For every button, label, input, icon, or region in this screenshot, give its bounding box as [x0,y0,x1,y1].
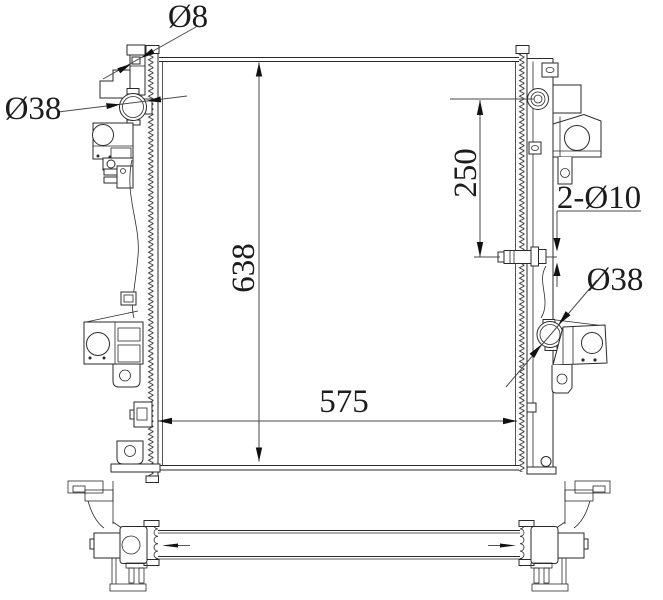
dimension-core-width: 575 [158,384,517,424]
dimension-inlet-dia: Ø38 [5,91,187,127]
right-end-tank [519,481,610,591]
bracket-top-right [553,85,601,157]
dim-label-638: 638 [226,243,262,293]
dim-label-250: 250 [448,148,484,198]
left-end-tank [68,481,159,591]
connector-top-left [104,166,133,188]
break-line [541,266,546,318]
bracket-bottom-left [84,311,143,387]
right-foot-pins [531,558,568,591]
dim-label-dia38-right: Ø38 [587,262,644,298]
dim-label-dia8: Ø8 [168,0,208,35]
clip-bottom-left [130,402,152,427]
clip-right-mid [529,142,541,154]
bracket-top-left [93,123,134,170]
bottom-core [158,531,520,560]
dim-label-2-dia10: 2-Ø10 [557,180,641,216]
clip-left-mid [121,292,136,305]
dimension-core-height: 638 [226,63,262,462]
foot-bottom-right [527,457,556,475]
left-hook-bracket [68,481,121,528]
dim-label-575: 575 [319,384,369,420]
left-foot-pins [110,558,147,591]
surface-mark-right [500,544,516,548]
dimension-port-offset: 250 [448,99,557,257]
right-hook-bracket [557,481,610,528]
bottom-view [68,481,610,591]
clip-top-right [542,63,558,77]
dim-label-dia38-left: Ø38 [5,91,62,127]
radiator-technical-drawing: 638 575 250 Ø8 [0,0,663,600]
dimension-overflow-dia: Ø8 [103,0,208,79]
surface-mark-left [162,544,178,548]
